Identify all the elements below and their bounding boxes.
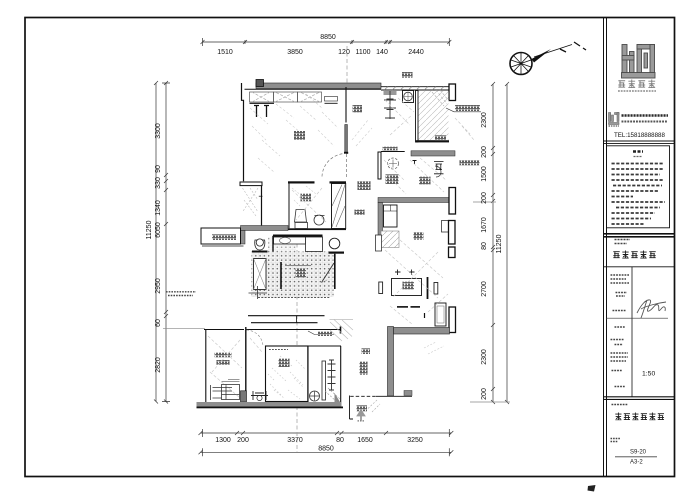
svg-text:1670: 1670 bbox=[481, 217, 488, 233]
svg-text:1:50: 1:50 bbox=[642, 371, 655, 378]
svg-text:8850: 8850 bbox=[318, 446, 334, 453]
svg-text:8850: 8850 bbox=[320, 34, 336, 41]
svg-text:80: 80 bbox=[336, 437, 344, 444]
svg-text:A3-2: A3-2 bbox=[630, 460, 643, 466]
svg-text:11250: 11250 bbox=[496, 234, 503, 253]
svg-text:1340: 1340 bbox=[155, 200, 162, 216]
svg-text:1650: 1650 bbox=[357, 437, 373, 444]
svg-text:1100: 1100 bbox=[355, 49, 370, 56]
svg-text:200: 200 bbox=[237, 437, 249, 444]
svg-text:200: 200 bbox=[481, 192, 488, 204]
svg-text:TEL:15818888888: TEL:15818888888 bbox=[614, 132, 665, 139]
svg-text:60: 60 bbox=[155, 319, 162, 327]
svg-text:3370: 3370 bbox=[287, 437, 303, 444]
svg-text:2820: 2820 bbox=[155, 357, 162, 373]
svg-text:2950: 2950 bbox=[155, 278, 162, 294]
svg-text:1300: 1300 bbox=[215, 437, 231, 444]
svg-text:200: 200 bbox=[481, 146, 488, 158]
svg-text:2300: 2300 bbox=[481, 349, 488, 365]
svg-text:3300: 3300 bbox=[155, 123, 162, 139]
svg-text:90: 90 bbox=[155, 165, 162, 173]
svg-text:6050: 6050 bbox=[155, 222, 162, 238]
svg-text:140: 140 bbox=[376, 49, 388, 56]
svg-text:80: 80 bbox=[481, 242, 488, 250]
svg-text:11250: 11250 bbox=[146, 220, 153, 239]
svg-text:3850: 3850 bbox=[287, 49, 303, 56]
svg-text:2700: 2700 bbox=[481, 281, 488, 297]
svg-text:200: 200 bbox=[481, 388, 488, 400]
svg-text:330: 330 bbox=[155, 177, 162, 189]
svg-text:2300: 2300 bbox=[481, 112, 488, 128]
svg-text:1500: 1500 bbox=[481, 166, 488, 182]
svg-text:1510: 1510 bbox=[217, 49, 233, 56]
svg-text:S9-20: S9-20 bbox=[630, 450, 647, 456]
svg-text:120: 120 bbox=[338, 49, 350, 56]
svg-text:3250: 3250 bbox=[407, 437, 423, 444]
svg-text:2440: 2440 bbox=[408, 49, 424, 56]
